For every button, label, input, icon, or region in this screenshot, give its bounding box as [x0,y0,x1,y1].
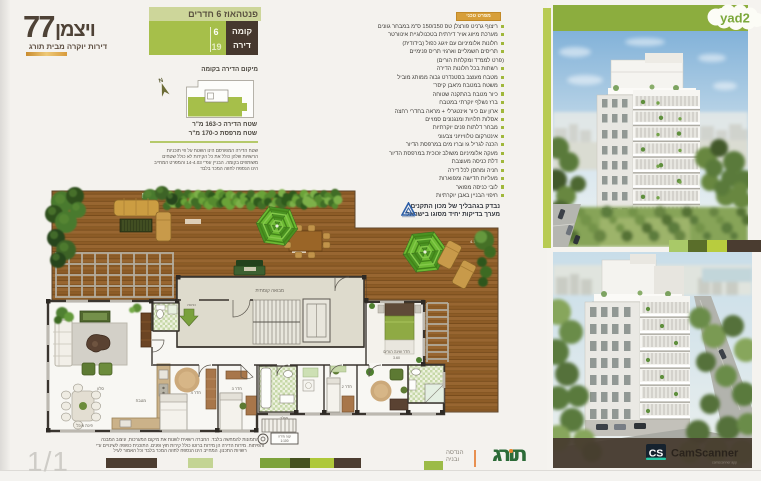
svg-text:CamScanner: CamScanner [671,448,739,460]
svg-text:CS: CS [649,448,664,460]
svg-text:yad2: yad2 [720,11,750,26]
svg-text:camscanner app: camscanner app [712,461,737,465]
